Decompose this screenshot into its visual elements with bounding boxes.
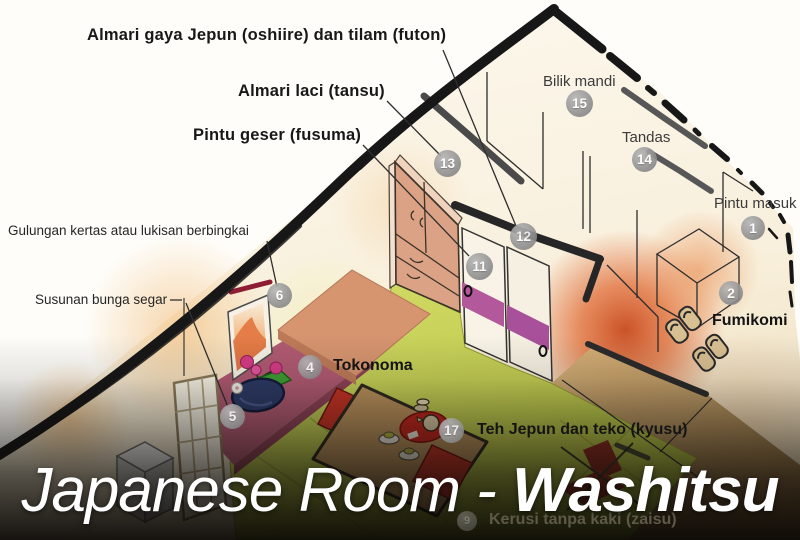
title-regular: Japanese Room - [21, 456, 512, 525]
page-title: Japanese Room - Washitsu [0, 460, 800, 522]
label-fusuma: Pintu geser (fusuma) [193, 126, 361, 145]
badge-6-gulungan: 6 [267, 283, 292, 308]
badge-11-fusuma: 11 [466, 253, 493, 280]
badge-14-tandas: 14 [632, 147, 657, 172]
badge-2-fumikomi: 2 [719, 281, 743, 305]
label-teh-kyusu: Teh Jepun dan teko (kyusu) [477, 421, 687, 439]
label-oshiire-futon: Almari gaya Jepun (oshiire) dan tilam (f… [87, 26, 446, 45]
title-bold: Washitsu [512, 456, 778, 525]
label-tandas: Tandas [622, 129, 670, 146]
label-bilik-mandi: Bilik mandi [543, 73, 616, 90]
washitsu-diagram: Almari gaya Jepun (oshiire) dan tilam (f… [0, 0, 800, 540]
badge-17-teh: 17 [439, 418, 464, 443]
badge-5-bunga: 5 [220, 404, 245, 429]
badge-12-oshiire: 12 [510, 223, 537, 250]
label-susunan: Susunan bunga segar [35, 292, 167, 308]
label-tansu: Almari laci (tansu) [238, 82, 385, 101]
badge-13-tansu: 13 [434, 150, 461, 177]
label-fumikomi: Fumikomi [712, 312, 788, 330]
badge-4-tokonoma: 4 [298, 355, 322, 379]
badge-15-bilik-mandi: 15 [566, 90, 593, 117]
label-gulungan: Gulungan kertas atau lukisan berbingkai [8, 223, 249, 239]
badge-1-pintu-masuk: 1 [741, 216, 765, 240]
label-tokonoma: Tokonoma [333, 357, 413, 375]
label-pintu-masuk: Pintu masuk [714, 195, 797, 212]
